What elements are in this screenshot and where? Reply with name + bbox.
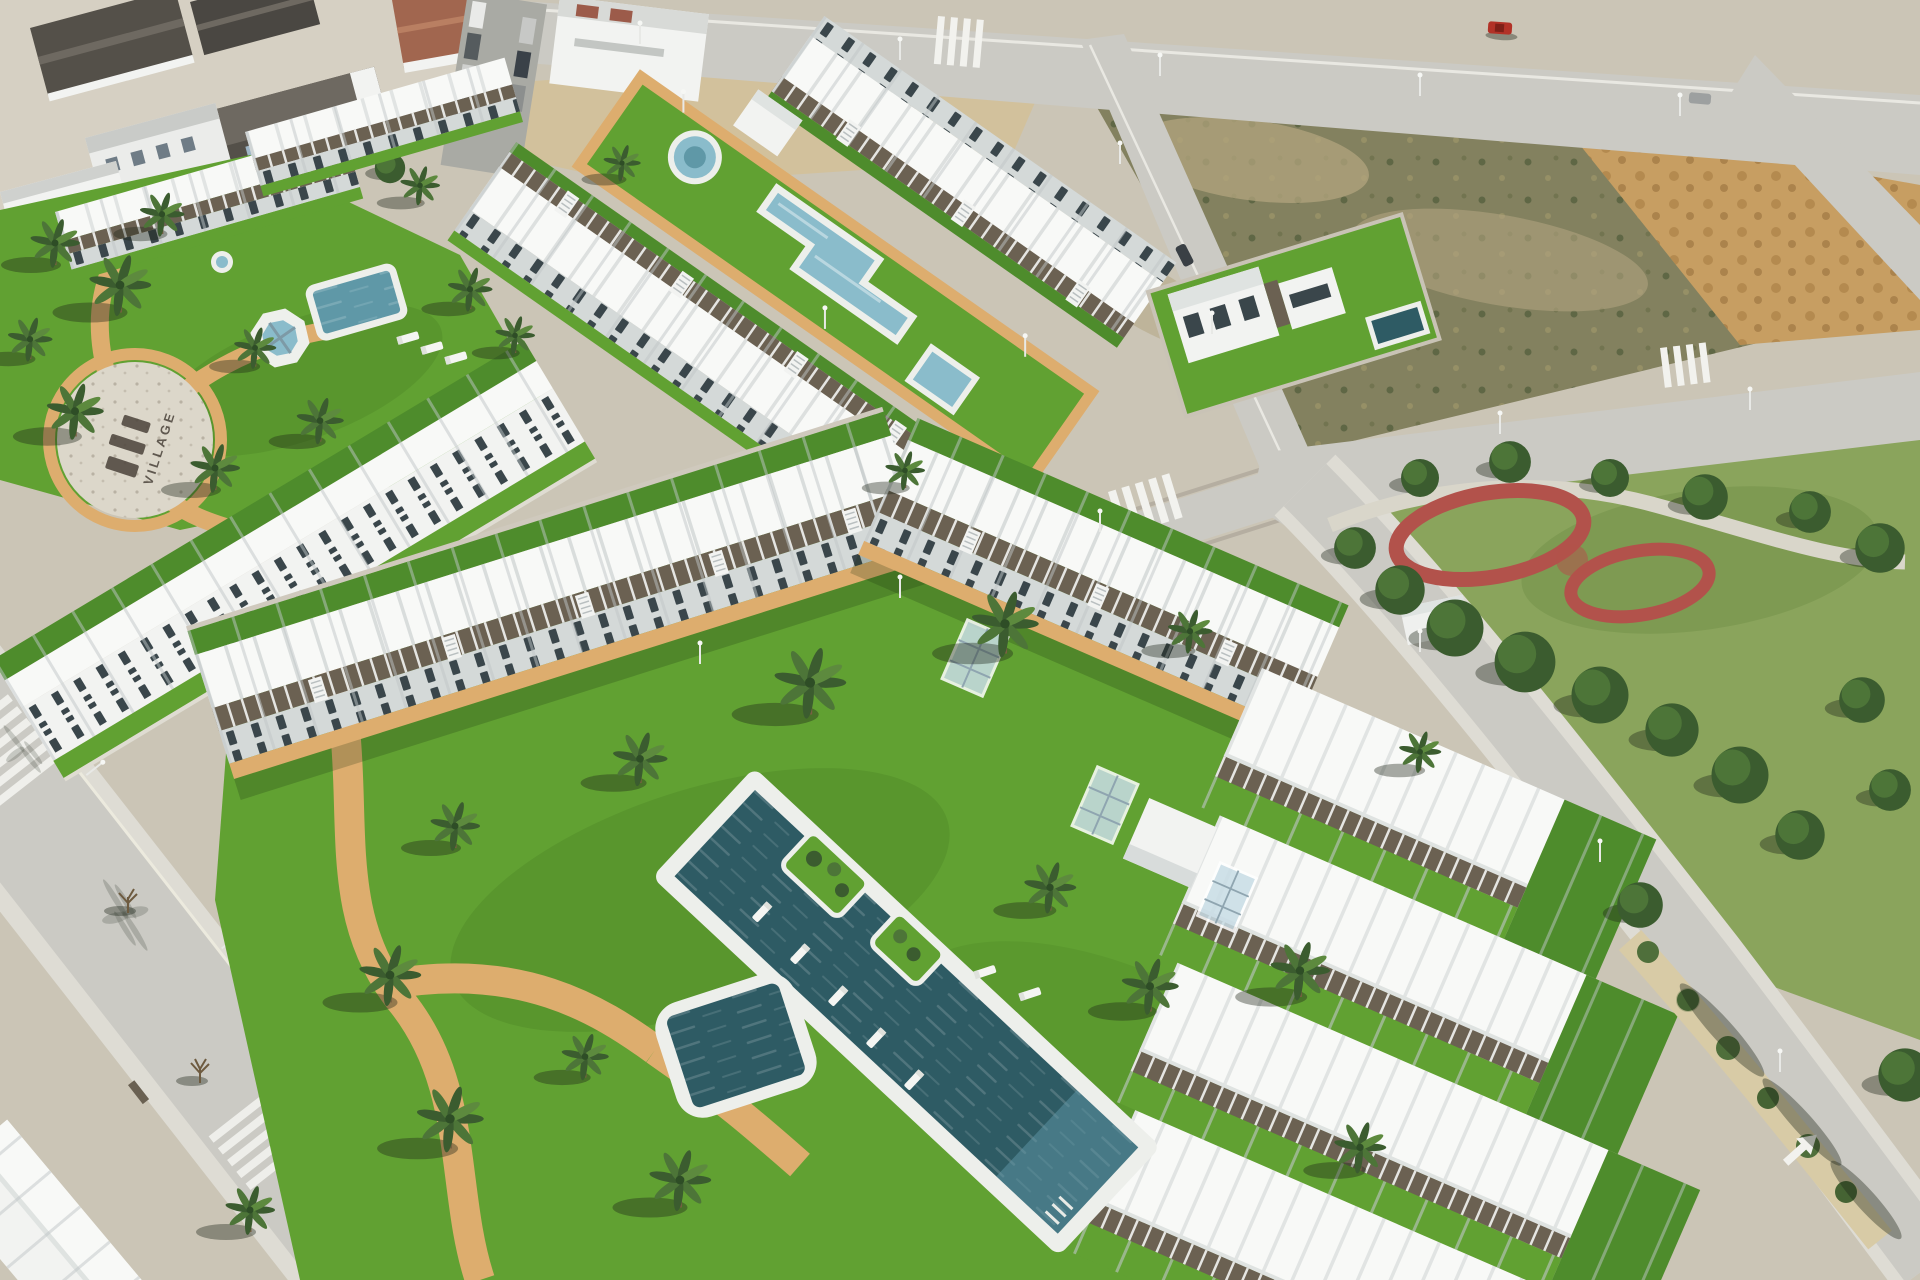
car: [1689, 92, 1712, 105]
aerial-render: VILLAGE: [0, 0, 1920, 1280]
round-fountain-small: [211, 251, 233, 273]
scene-canvas: VILLAGE: [0, 0, 1920, 1280]
hedge-shrub: [1637, 941, 1659, 963]
